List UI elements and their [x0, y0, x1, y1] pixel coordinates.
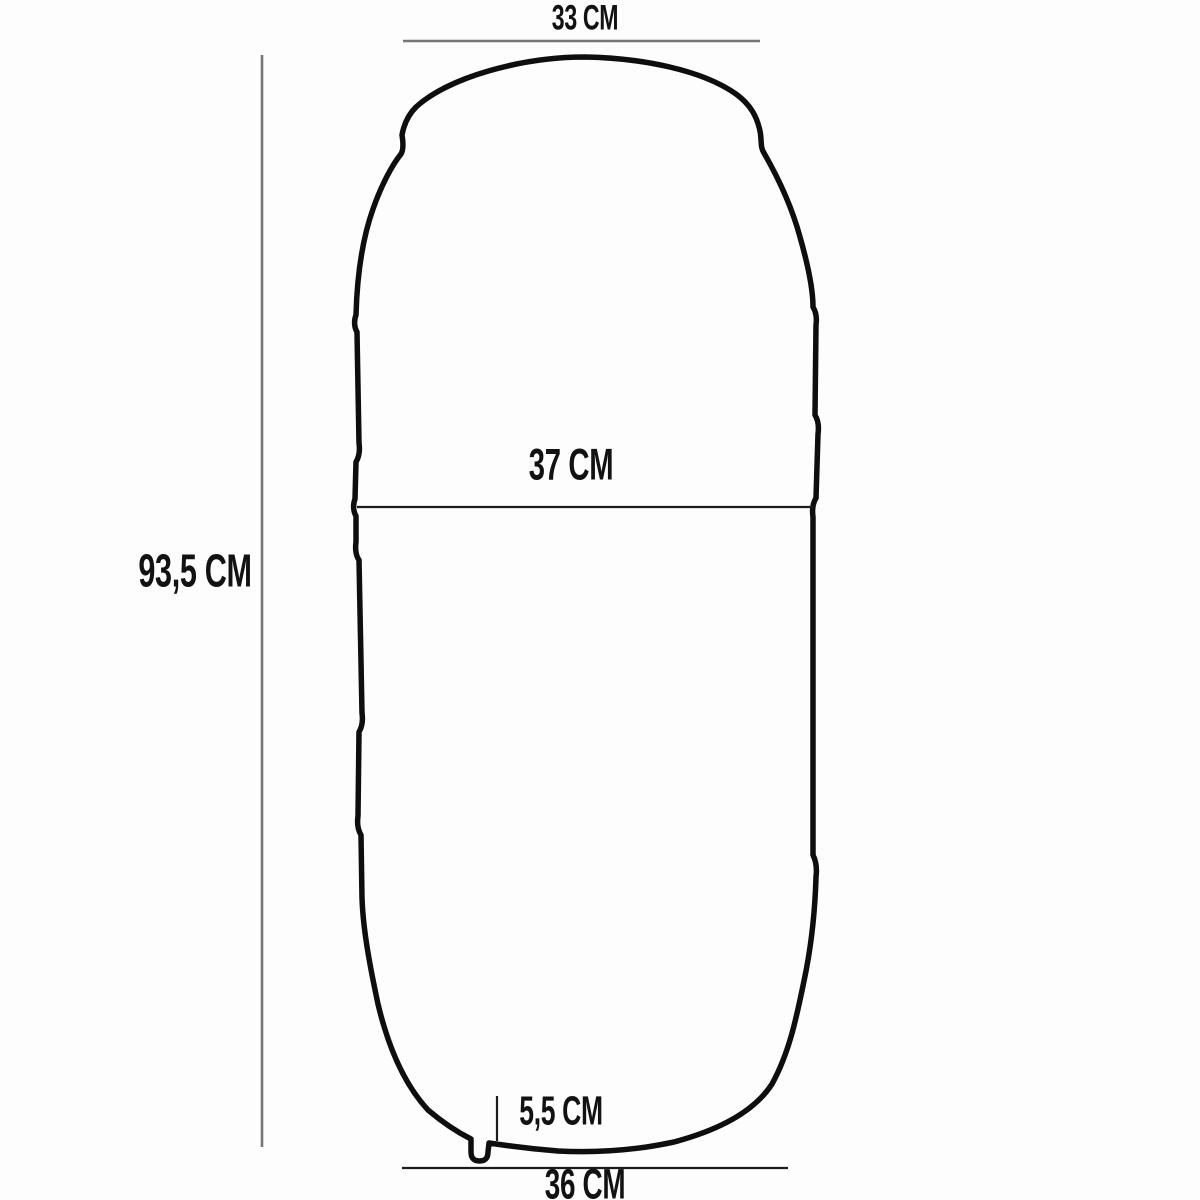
dimension-diagram-canvas: 33 CM 37 CM 93,5 CM 5,5 CM 36 CM	[0, 0, 1200, 1200]
height-label: 93,5 CM	[138, 547, 251, 594]
top-width-label: 33 CM	[552, 0, 618, 35]
valve-height-label: 5,5 CM	[519, 1091, 602, 1132]
bottom-width-label: 36 CM	[545, 1163, 625, 1200]
tank-outline-drawing	[0, 0, 1200, 1200]
tank-outline	[354, 57, 819, 1161]
middle-width-label: 37 CM	[529, 443, 613, 488]
